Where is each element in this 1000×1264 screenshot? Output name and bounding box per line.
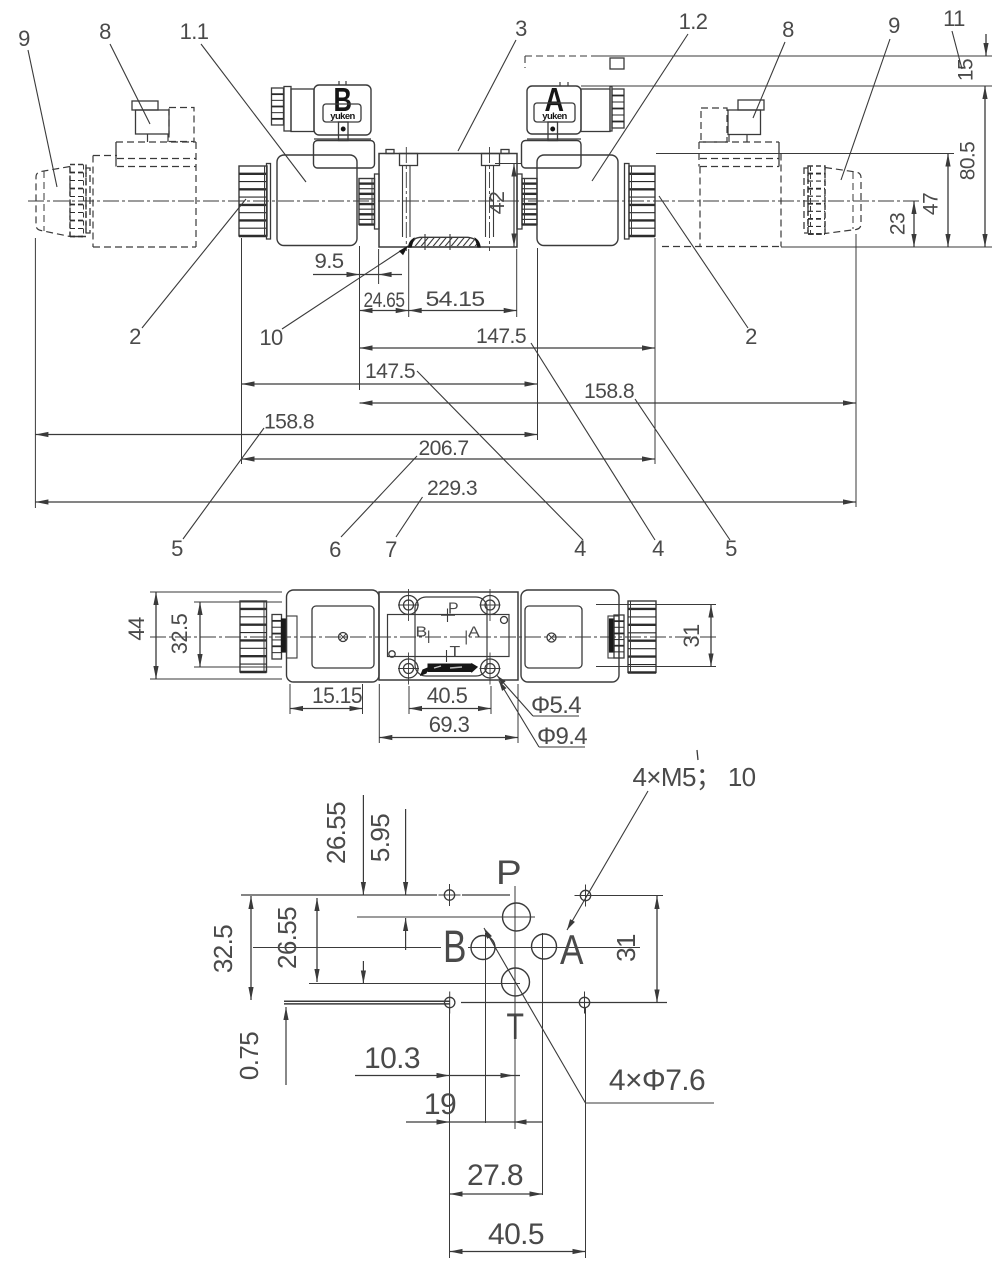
svg-text:158.8: 158.8 [264, 410, 315, 434]
svg-text:B: B [443, 921, 466, 972]
svg-text:4: 4 [574, 536, 586, 561]
svg-text:147.5: 147.5 [476, 324, 527, 348]
svg-text:229.3: 229.3 [427, 476, 478, 500]
svg-text:42: 42 [485, 192, 509, 215]
svg-text:4: 4 [652, 536, 664, 561]
svg-text:27.8: 27.8 [467, 1159, 523, 1192]
svg-text:158.8: 158.8 [584, 379, 635, 403]
svg-text:8: 8 [99, 19, 111, 44]
svg-text:5: 5 [725, 536, 737, 561]
svg-text:23: 23 [887, 213, 910, 235]
svg-text:3: 3 [515, 16, 527, 41]
svg-text:9.5: 9.5 [315, 249, 345, 273]
svg-text:1.1: 1.1 [180, 19, 209, 44]
svg-text:2: 2 [745, 324, 757, 349]
svg-text:9: 9 [888, 13, 900, 38]
svg-text:A: A [560, 926, 583, 973]
svg-text:15.15: 15.15 [312, 683, 362, 708]
svg-text:54.15: 54.15 [426, 287, 486, 311]
svg-text:69.3: 69.3 [429, 712, 470, 737]
svg-text:40.5: 40.5 [427, 683, 468, 708]
svg-text:2: 2 [129, 324, 141, 349]
svg-text:B: B [416, 624, 428, 641]
svg-text:11: 11 [943, 6, 965, 31]
svg-text:44: 44 [124, 617, 149, 641]
svg-text:P: P [496, 854, 521, 892]
svg-text:8: 8 [782, 17, 794, 42]
svg-text:6: 6 [329, 537, 341, 562]
svg-text:10: 10 [259, 325, 283, 350]
svg-text:26.55: 26.55 [272, 907, 302, 969]
svg-text:Φ5.4: Φ5.4 [531, 692, 581, 719]
svg-text:9: 9 [18, 26, 30, 51]
svg-text:32.5: 32.5 [208, 925, 238, 973]
svg-text:80.5: 80.5 [957, 142, 980, 180]
svg-text:T: T [450, 643, 460, 660]
svg-text:15: 15 [955, 59, 978, 81]
svg-text:32.5: 32.5 [167, 613, 192, 654]
svg-text:31: 31 [679, 624, 704, 648]
svg-text:yuken: yuken [330, 111, 355, 122]
svg-text:24.65: 24.65 [364, 288, 406, 312]
svg-text:5: 5 [171, 536, 183, 561]
svg-text:147.5: 147.5 [365, 359, 416, 383]
svg-text:A: A [468, 624, 480, 641]
svg-text:7: 7 [385, 537, 397, 562]
svg-text:10.3: 10.3 [364, 1042, 420, 1075]
svg-text:26.55: 26.55 [321, 802, 351, 864]
svg-text:31: 31 [611, 934, 641, 962]
svg-text:4×Φ7.6: 4×Φ7.6 [609, 1064, 705, 1097]
svg-text:4×M5； 10: 4×M5； 10 [632, 762, 755, 792]
svg-text:Φ9.4: Φ9.4 [537, 723, 587, 750]
svg-text:47: 47 [920, 193, 943, 215]
svg-text:19: 19 [424, 1088, 456, 1121]
svg-text:1.2: 1.2 [679, 9, 708, 34]
svg-text:yuken: yuken [542, 111, 567, 122]
svg-text:40.5: 40.5 [488, 1218, 544, 1251]
svg-text:5.95: 5.95 [365, 814, 395, 862]
svg-text:0.75: 0.75 [234, 1032, 264, 1080]
svg-text:206.7: 206.7 [419, 436, 469, 460]
